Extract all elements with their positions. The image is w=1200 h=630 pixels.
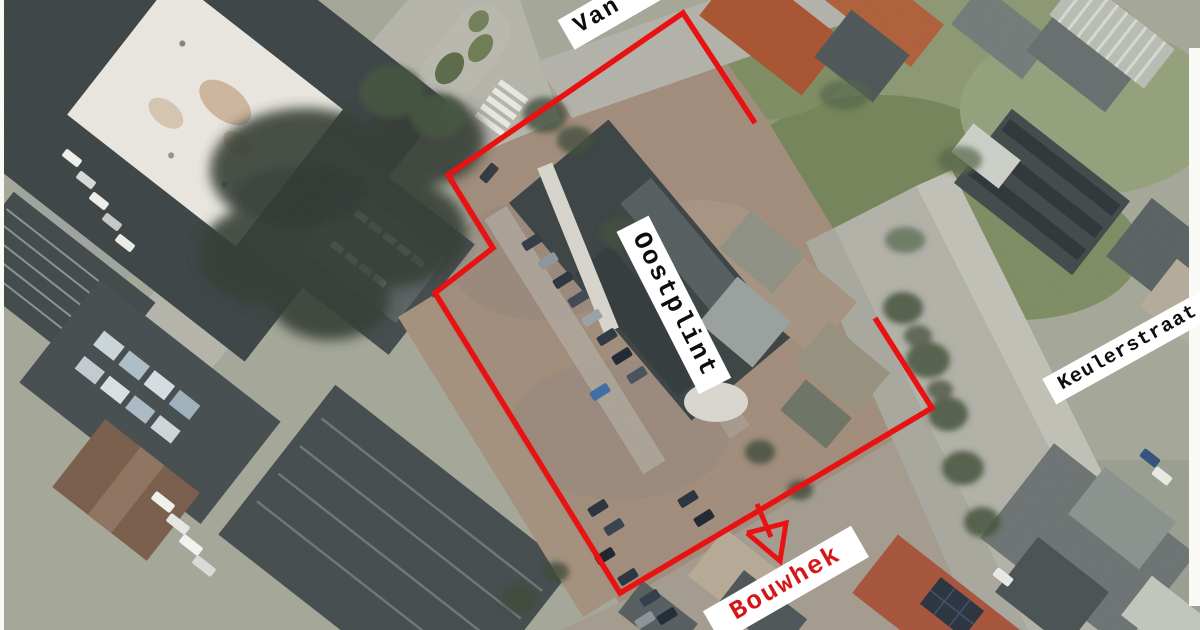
photo-grain (0, 0, 1200, 630)
annotated-aerial-map: Van Oostplint Keulerstraat Bouwhek (0, 0, 1200, 630)
aerial-photo (0, 0, 1200, 630)
